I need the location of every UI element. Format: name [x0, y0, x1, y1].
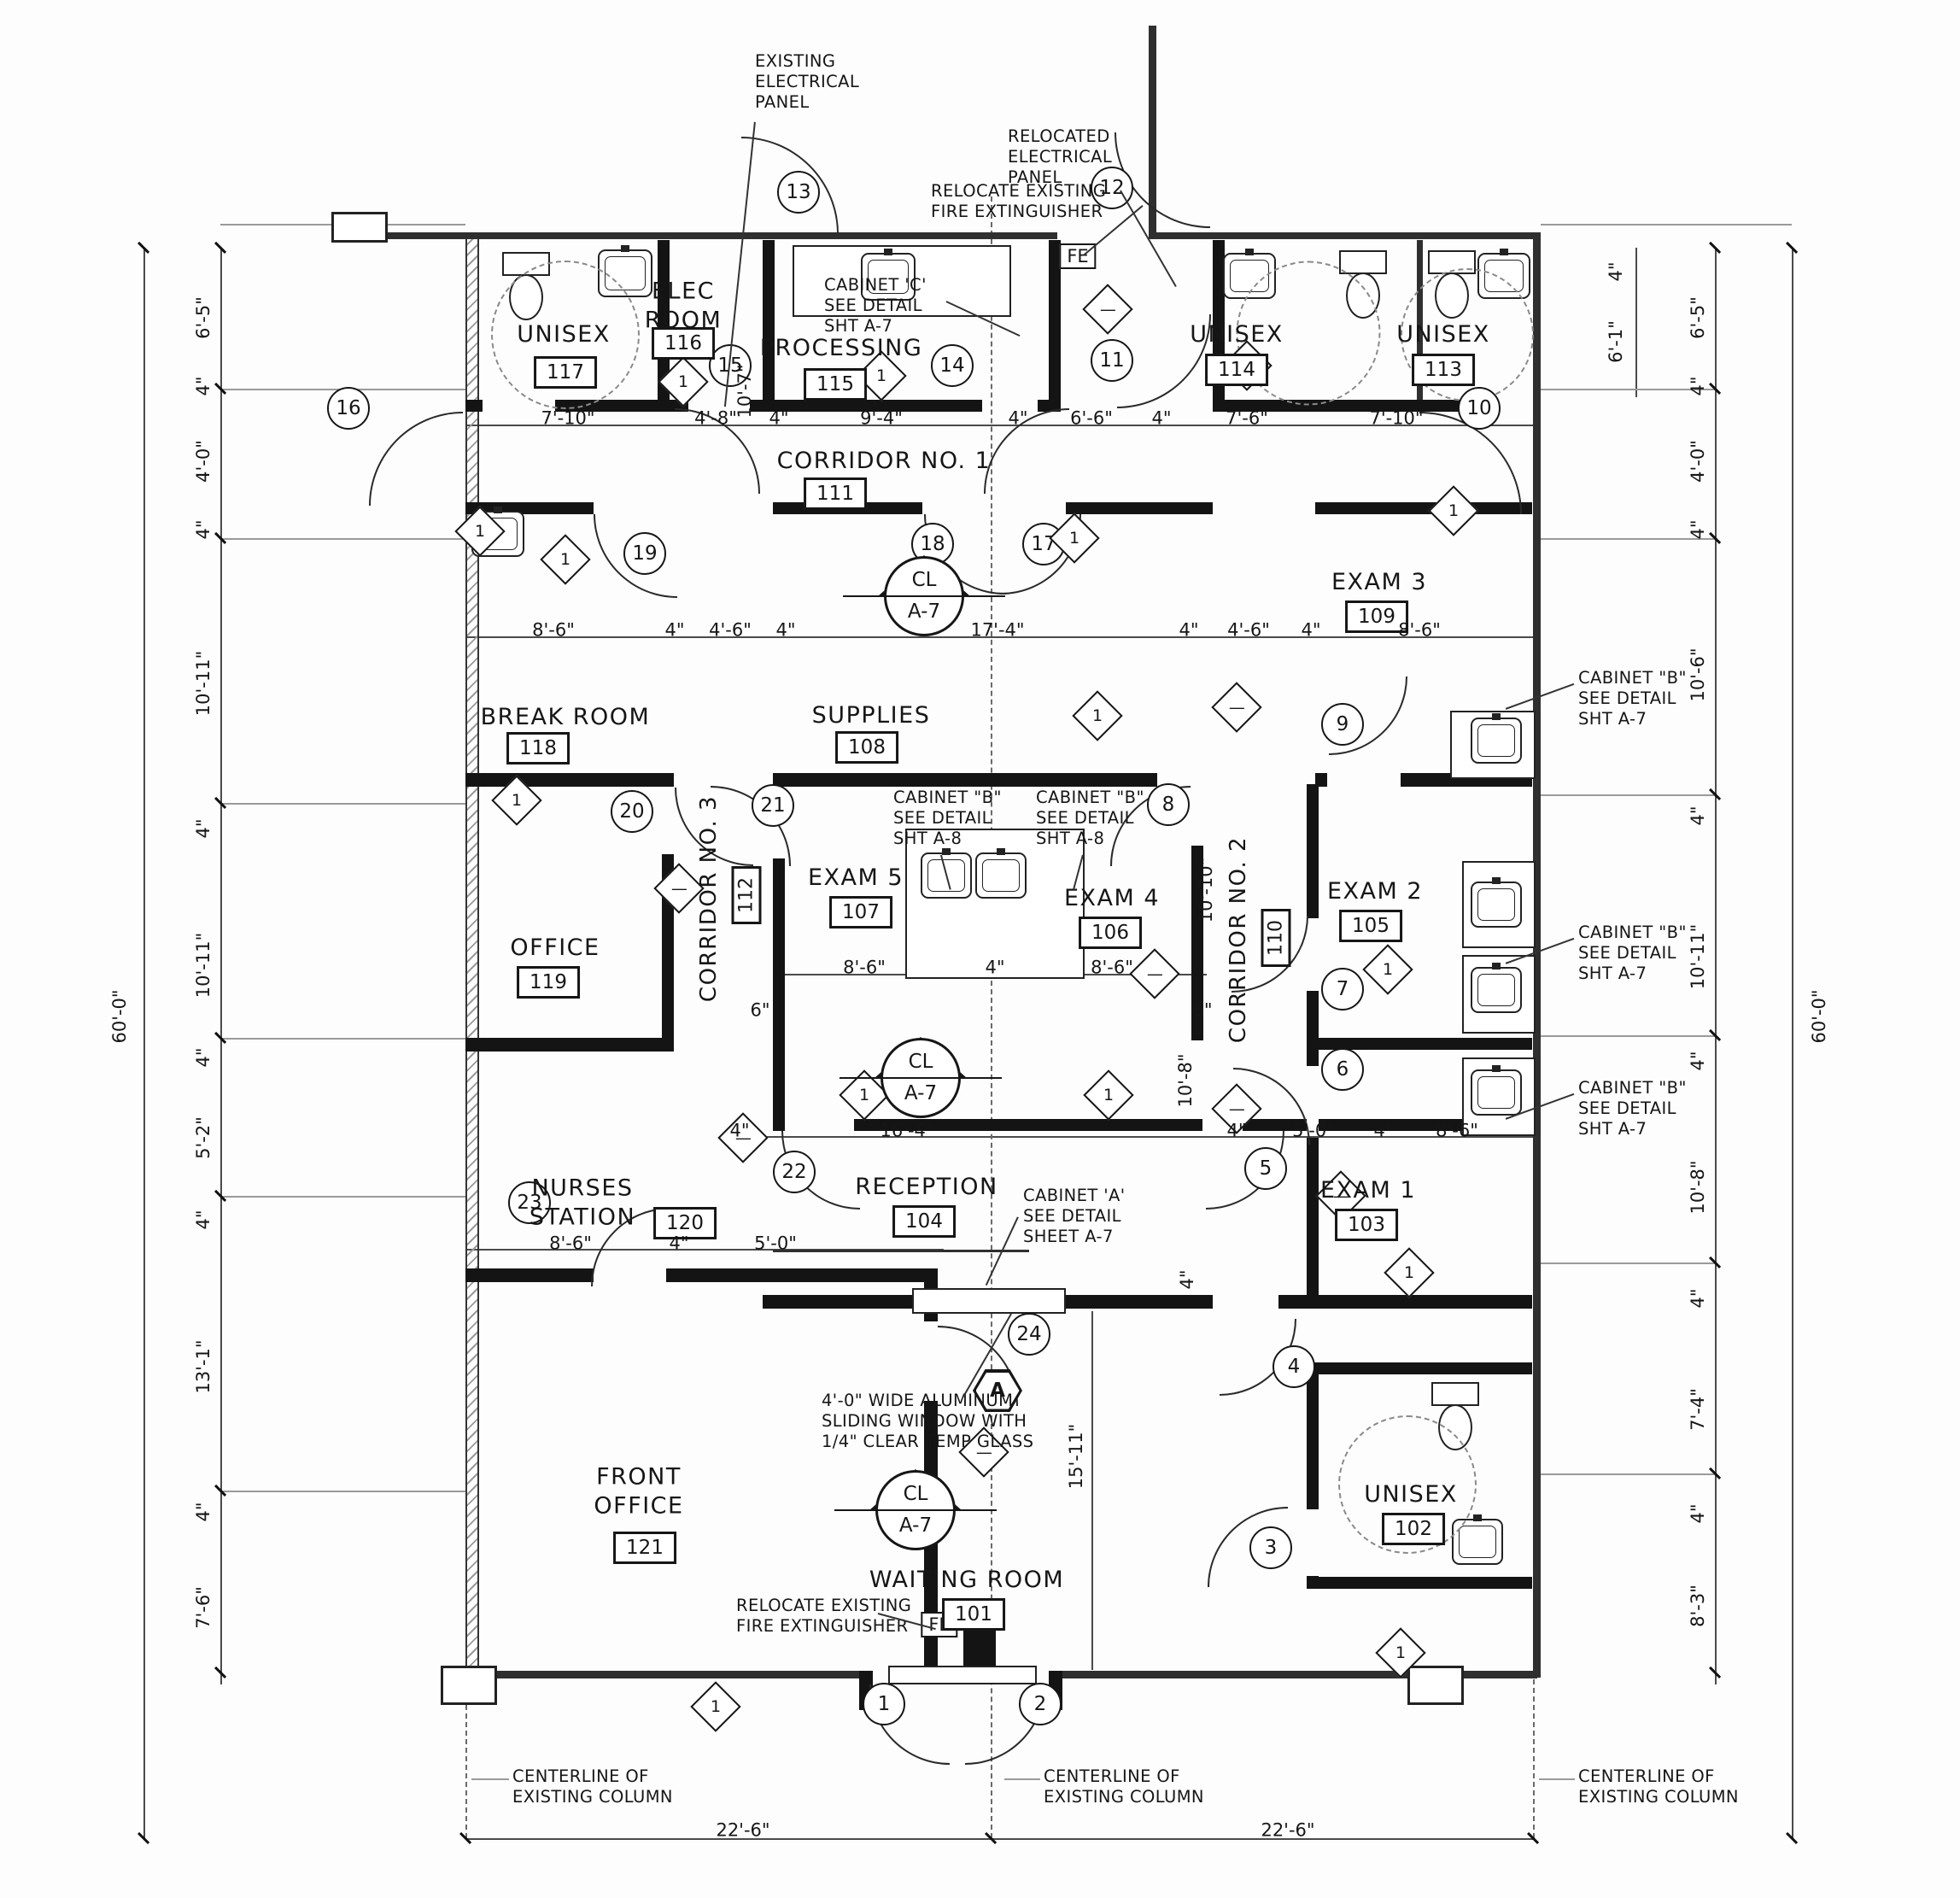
sink-icon	[1471, 882, 1522, 928]
dim-text: 4"	[769, 408, 788, 429]
keynote-text: —	[671, 879, 687, 898]
dim-text: 4"	[193, 818, 214, 838]
note-sliding-window: 4'-0" WIDE ALUMINUM SLIDING WINDOW WITH …	[822, 1391, 1033, 1451]
door-number: 5	[1260, 1157, 1273, 1180]
wall	[465, 1268, 594, 1282]
keynote-diamond: 1	[1072, 690, 1122, 741]
sink-icon	[975, 852, 1027, 899]
door-tag-8: 8	[1147, 783, 1190, 826]
dim-text: 4"	[1008, 408, 1027, 429]
extension-line	[220, 1038, 465, 1040]
keynote-diamond: 1	[1362, 944, 1413, 994]
door-tag-9: 9	[1321, 703, 1364, 746]
keynote-text: 1	[512, 791, 522, 810]
dim-text: 4"	[193, 376, 214, 395]
dim-text: 4"	[1606, 261, 1626, 281]
door-swing-arc	[369, 412, 463, 506]
dim-line	[1635, 248, 1637, 397]
door-number: 11	[1099, 349, 1124, 372]
room-number-108: 108	[835, 731, 898, 764]
dim-text: 4"	[193, 519, 214, 539]
dim-text: 8'-6"	[1091, 958, 1133, 978]
door-number: 19	[632, 542, 657, 565]
note-existing-panel: EXISTING ELECTRICAL PANEL	[755, 51, 859, 112]
room-label-supplies: SUPPLIES	[812, 701, 931, 730]
door-tag-2: 2	[1019, 1683, 1062, 1725]
note-cabinet-b: CABINET "B" SEE DETAIL SHT A-8	[893, 788, 1002, 848]
dim-text: 15'-11"	[1066, 1424, 1086, 1489]
wall	[773, 1119, 785, 1131]
section-marker-label: CL	[904, 1483, 928, 1505]
note-cabinet-b: CABINET "B" SEE DETAIL SHT A-8	[1036, 788, 1144, 848]
wall	[1307, 1138, 1319, 1307]
room-label-exam-2: EXAM 2	[1327, 877, 1423, 906]
dim-text: 4'-6"	[1227, 620, 1270, 641]
dim-text: 6'-5"	[1688, 296, 1708, 339]
room-number-111: 111	[804, 477, 867, 510]
dim-text: 7'-4"	[1688, 1388, 1708, 1431]
door-number: 10	[1466, 397, 1491, 419]
door-tag-19: 19	[623, 532, 666, 575]
room-number-105: 105	[1339, 910, 1402, 942]
keynote-diamond: 1	[690, 1681, 740, 1731]
door-tag-24: 24	[1008, 1313, 1050, 1356]
room-number-121: 121	[613, 1532, 676, 1564]
note-relocated-panel: RELOCATED ELECTRICAL PANEL	[1008, 126, 1112, 187]
note-centerline: CENTERLINE OF EXISTING COLUMN	[1578, 1766, 1739, 1807]
extension-line	[220, 803, 465, 805]
dim-text: 8'-6"	[843, 958, 886, 978]
dim-text: 8'-6"	[1398, 620, 1441, 641]
dim-text: 4'-8"	[694, 408, 737, 429]
section-marker-sheet: A-7	[904, 1082, 937, 1104]
wall	[465, 1038, 674, 1052]
door-number: 16	[336, 397, 360, 419]
door-tag-7: 7	[1321, 968, 1364, 1011]
wall	[773, 858, 785, 1040]
dim-text: 6"	[1192, 1000, 1212, 1021]
room-label-office: OFFICE	[510, 934, 600, 963]
dim-text: 4"	[1688, 376, 1708, 395]
dim-text: 10'-10"	[1196, 858, 1216, 923]
dim-text: 4"	[669, 1233, 688, 1254]
door-number: 1	[878, 1693, 891, 1715]
wall	[1307, 991, 1319, 1066]
dim-text: 10'-8"	[1175, 1053, 1196, 1107]
note-cabinet-a: CABINET 'A' SEE DETAIL SHEET A-7	[1023, 1186, 1126, 1246]
keynote-text: 1	[1395, 1643, 1406, 1662]
extension-line	[1541, 1473, 1715, 1475]
dim-text: 4"	[985, 958, 1004, 978]
door-tag-4: 4	[1273, 1345, 1315, 1388]
sink-icon	[1471, 1069, 1522, 1116]
door-tag-21: 21	[752, 784, 794, 827]
dim-text: 4"	[193, 1502, 214, 1521]
room-number-115: 115	[804, 368, 867, 401]
dim-text: 60'-0"	[109, 989, 130, 1043]
extension-line	[1541, 794, 1715, 796]
dim-text: 4"	[664, 620, 684, 641]
dim-text: 4"	[1301, 620, 1320, 641]
dim-text: 4"	[1179, 620, 1198, 641]
extension-line	[220, 1491, 465, 1492]
room-number-118: 118	[506, 732, 570, 764]
room-label-unisex-114: UNISEX	[1190, 320, 1284, 349]
door-number: 21	[760, 794, 785, 817]
door-tag-16: 16	[327, 387, 370, 430]
wall	[773, 1038, 785, 1119]
keynote-text: 1	[1069, 529, 1079, 548]
sink-icon	[1471, 967, 1522, 1013]
dim-text: 60'-0"	[1809, 989, 1829, 1043]
dim-text: 7'-6"	[1226, 408, 1268, 429]
keynote-text: 1	[1448, 501, 1459, 520]
extension-line	[1541, 1035, 1715, 1037]
exam-shared-counter	[905, 829, 1085, 979]
dim-text: 4"	[193, 1047, 214, 1067]
extension-line	[1541, 1262, 1715, 1264]
room-number-107: 107	[829, 896, 892, 928]
note-relocate-fe: RELOCATE EXISTING FIRE EXTINGUISHER	[931, 181, 1106, 222]
room-number-117: 117	[534, 356, 597, 389]
wall	[1307, 1362, 1319, 1509]
note-cabinet-b: CABINET "B" SEE DETAIL SHT A-7	[1578, 1078, 1687, 1139]
room-label-nurses-station: NURSES STATION	[529, 1174, 635, 1232]
dim-text: 8'-6"	[549, 1233, 592, 1254]
room-number-103: 103	[1335, 1209, 1398, 1241]
room-number-106: 106	[1079, 917, 1142, 949]
door-number: 8	[1162, 794, 1175, 816]
door-number: 18	[920, 533, 945, 555]
keynote-text: 1	[475, 522, 485, 541]
leader-line	[1004, 1778, 1040, 1780]
dim-text: 8'-3"	[1688, 1585, 1708, 1627]
exterior-wall-top	[1155, 232, 1541, 239]
keynote-text: 1	[1383, 960, 1393, 979]
dim-text: 4"	[1688, 1503, 1708, 1523]
door-number: 4	[1288, 1356, 1301, 1378]
wall	[1066, 502, 1160, 514]
keynote-text: 1	[1103, 1086, 1114, 1104]
room-number-102: 102	[1382, 1513, 1445, 1545]
door-number: 9	[1337, 713, 1349, 735]
extension-line	[220, 538, 465, 540]
wall	[763, 240, 775, 404]
wall	[1155, 502, 1213, 514]
wall	[1136, 1119, 1202, 1131]
keynote-diamond: 1	[540, 534, 590, 584]
section-marker-line	[843, 595, 1005, 598]
wall	[1307, 784, 1319, 918]
door-number: 14	[939, 354, 964, 377]
column	[1407, 1666, 1464, 1705]
dim-text: 5'-0"	[1292, 1121, 1335, 1141]
centerline	[1533, 1679, 1535, 1838]
section-marker-line	[840, 1077, 1002, 1080]
exterior-wall-top	[333, 232, 1057, 239]
dim-text: 22'-6"	[716, 1820, 769, 1841]
section-marker: CL A-7	[834, 1469, 997, 1551]
dim-text: 4"	[1373, 1121, 1393, 1141]
dim-text: 4"	[1688, 519, 1708, 539]
door-number: 6	[1337, 1058, 1349, 1081]
extension-line	[220, 1196, 465, 1198]
room-number-114: 114	[1205, 354, 1268, 386]
keynote-diamond: —	[1211, 682, 1261, 732]
wall	[465, 773, 662, 787]
door-tag-6: 6	[1321, 1048, 1364, 1091]
room-number-101: 101	[942, 1598, 1005, 1631]
wall	[662, 773, 674, 787]
room-label-front-office: FRONT OFFICE	[594, 1462, 683, 1520]
room-label-unisex-117: UNISEX	[517, 320, 611, 349]
dim-text: 10'-6"	[1688, 647, 1708, 701]
note-cabinet-b: CABINET "B" SEE DETAIL SHT A-7	[1578, 923, 1687, 983]
dim-text: 4'-0"	[1688, 440, 1708, 483]
keynote-text: 1	[711, 1697, 721, 1716]
wall	[1278, 1295, 1532, 1309]
dim-text: 4"	[1688, 805, 1708, 825]
room-label-exam-3: EXAM 3	[1331, 568, 1427, 597]
door-tag-10: 10	[1458, 387, 1501, 430]
keynote-diamond: —	[1129, 948, 1179, 999]
dim-text: 4"	[1688, 1051, 1708, 1070]
wall	[465, 400, 483, 412]
dim-text: 6"	[750, 1000, 769, 1021]
note-cabinet-c: CABINET 'C' SEE DETAIL SHT A-7	[824, 275, 927, 336]
leader-line	[1539, 1778, 1575, 1780]
door-tag-5: 5	[1244, 1147, 1287, 1190]
door-number: 22	[781, 1161, 806, 1183]
dim-text: 4"	[1688, 1288, 1708, 1308]
dim-text: 4"	[1226, 1121, 1246, 1141]
door-number: 7	[1337, 978, 1349, 1000]
floor-plan: 16 13 15 14 12 11 10 19 18 17 9 8 21 20 …	[0, 0, 1960, 1898]
dim-text: 6'-5"	[193, 296, 214, 339]
dim-text: 7'-10"	[541, 408, 594, 429]
dim-text: 4'-0"	[193, 440, 214, 483]
keynote-diamond: 1	[1083, 1069, 1133, 1120]
dim-text: 10'-11"	[193, 651, 214, 716]
dim-text: 4"	[1177, 1269, 1197, 1289]
keynote-text: 1	[678, 372, 688, 391]
dim-text: 9'-4"	[860, 408, 903, 429]
room-number-116: 116	[652, 327, 715, 360]
leader-line	[471, 1778, 509, 1780]
door-number: 13	[786, 181, 810, 203]
column	[331, 212, 388, 243]
door-tag-1: 1	[863, 1683, 905, 1725]
room-label-reception: RECEPTION	[855, 1173, 998, 1202]
section-marker: CL A-7	[840, 1037, 1002, 1119]
door-tag-22: 22	[773, 1151, 816, 1193]
dim-text: 10'-8"	[1688, 1160, 1708, 1214]
dim-line	[1792, 248, 1793, 1838]
dim-text: 5'-2"	[193, 1116, 214, 1159]
dim-line	[1715, 248, 1717, 1684]
wall	[666, 1268, 938, 1282]
door-number: 20	[619, 800, 644, 823]
exterior-wall-left	[465, 232, 479, 1678]
keynote-text: 1	[1404, 1263, 1414, 1282]
dim-text: 22'-6"	[1261, 1820, 1314, 1841]
note-centerline: CENTERLINE OF EXISTING COLUMN	[512, 1766, 673, 1807]
dim-text: 5'-0"	[754, 1233, 797, 1254]
exterior-wall-bottom	[1059, 1671, 1537, 1678]
note-centerline: CENTERLINE OF EXISTING COLUMN	[1044, 1766, 1204, 1807]
room-number-104: 104	[892, 1205, 956, 1238]
dim-text: 8'-6"	[532, 620, 575, 641]
wall	[773, 773, 1157, 787]
note-cabinet-b: CABINET "B" SEE DETAIL SHT A-7	[1578, 668, 1687, 729]
keynote-text: 1	[876, 366, 886, 385]
room-label-processing-115: PROCESSING	[760, 334, 923, 363]
extension-line	[1541, 224, 1792, 226]
room-label-corridor-3: CORRIDOR NO. 3	[696, 795, 722, 1002]
room-label-exam-5: EXAM 5	[808, 864, 904, 893]
dim-text: 10'-11"	[1688, 924, 1708, 989]
dim-line	[143, 248, 145, 1838]
door-tag-14: 14	[931, 344, 974, 387]
room-number-113: 113	[1412, 354, 1475, 386]
section-marker-sheet: A-7	[899, 1514, 932, 1537]
dim-text: 10'-11"	[193, 933, 214, 998]
keynote-text: 1	[1092, 706, 1103, 725]
section-marker-label: CL	[909, 1051, 933, 1073]
dim-text: 4"	[729, 1121, 749, 1141]
wall	[1307, 1577, 1532, 1589]
dim-text: 6'-1"	[1606, 320, 1626, 363]
keynote-text: —	[1229, 1099, 1245, 1118]
door-number: 3	[1265, 1537, 1278, 1559]
keynote-text: —	[1147, 964, 1163, 983]
dim-text: 6'-6"	[1070, 408, 1113, 429]
keynote-text: 1	[560, 550, 570, 569]
keynote-text: —	[1229, 698, 1245, 717]
wall	[1061, 1295, 1213, 1309]
room-number-119: 119	[517, 966, 580, 999]
dim-text: 4"	[775, 620, 795, 641]
dim-text: 7'-10"	[1369, 408, 1423, 429]
room-label-unisex-102: UNISEX	[1364, 1480, 1458, 1509]
keynote-diamond: 1	[1384, 1247, 1434, 1298]
door-number: 2	[1034, 1693, 1047, 1715]
room-label-exam-4: EXAM 4	[1064, 884, 1160, 913]
dim-text: 8'-6"	[1436, 1121, 1478, 1141]
dim-text: 10'-7"	[734, 364, 755, 418]
fe-label: FE	[1067, 246, 1088, 267]
dim-text: 13'-1"	[193, 1339, 214, 1393]
wall	[763, 1295, 916, 1309]
room-label-unisex-113: UNISEX	[1396, 320, 1490, 349]
reception-sliding-window	[912, 1288, 1066, 1314]
room-label-elec-116: ELEC ROOM	[645, 277, 723, 335]
dim-text: 17'-4"	[970, 620, 1024, 641]
keynote-text: —	[1100, 300, 1116, 319]
section-marker-label: CL	[912, 569, 937, 591]
room-label-waiting-room: WAITING ROOM	[869, 1566, 1064, 1595]
dim-text: 7'-6"	[193, 1586, 214, 1629]
wall	[1307, 1362, 1532, 1374]
door-tag-11: 11	[1091, 339, 1133, 382]
wall	[1319, 1038, 1532, 1050]
sink-icon	[1471, 718, 1522, 764]
door-tag-3: 3	[1249, 1526, 1292, 1569]
room-label-corridor-2: CORRIDOR NO. 2	[1226, 836, 1251, 1043]
dim-line	[1091, 1311, 1093, 1670]
dim-text: 16'-4"	[880, 1121, 933, 1141]
section-marker-line	[834, 1509, 997, 1512]
room-label-corridor-1: CORRIDOR NO. 1	[777, 447, 992, 476]
door-tag-13: 13	[777, 171, 820, 214]
section-marker-sheet: A-7	[908, 600, 940, 623]
room-number-110: 110	[1261, 909, 1291, 967]
dim-text: 4"	[1151, 408, 1171, 429]
dim-line	[220, 248, 222, 1684]
column	[441, 1666, 497, 1705]
exterior-wall-bottom	[465, 1671, 865, 1678]
room-number-112: 112	[732, 866, 762, 924]
dim-text: 4"	[193, 1210, 214, 1229]
door-tag-20: 20	[611, 790, 653, 833]
entry-sliding-door	[888, 1666, 1037, 1684]
dim-text: 4'-6"	[709, 620, 752, 641]
reception-counter	[773, 1250, 1029, 1252]
room-label-exam-1: EXAM 1	[1320, 1176, 1416, 1205]
room-label-break-room: BREAK ROOM	[481, 703, 651, 732]
door-number: 24	[1016, 1323, 1041, 1345]
